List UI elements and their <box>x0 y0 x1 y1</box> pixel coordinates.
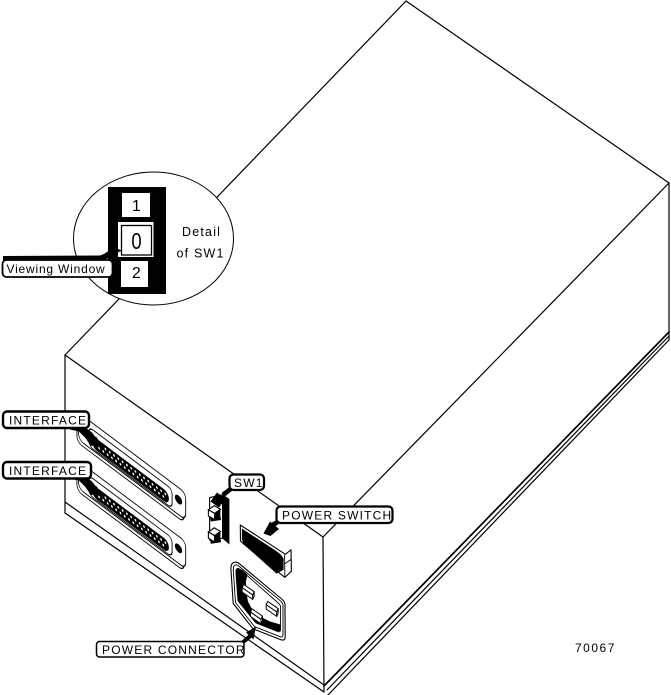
svg-text:INTERFACE: INTERFACE <box>9 414 87 428</box>
svg-text:Detail: Detail <box>182 225 221 239</box>
svg-text:SW1: SW1 <box>234 476 264 490</box>
svg-text:POWER CONNECTOR: POWER CONNECTOR <box>102 643 246 657</box>
svg-text:INTERFACE: INTERFACE <box>9 464 87 478</box>
svg-text:70067: 70067 <box>575 641 616 655</box>
svg-text:2: 2 <box>132 265 141 282</box>
svg-text:0: 0 <box>131 229 141 254</box>
svg-text:POWER SWITCH: POWER SWITCH <box>282 509 392 523</box>
svg-text:1: 1 <box>132 198 141 215</box>
svg-text:of SW1: of SW1 <box>177 247 225 261</box>
svg-text:Viewing Window: Viewing Window <box>7 262 106 276</box>
